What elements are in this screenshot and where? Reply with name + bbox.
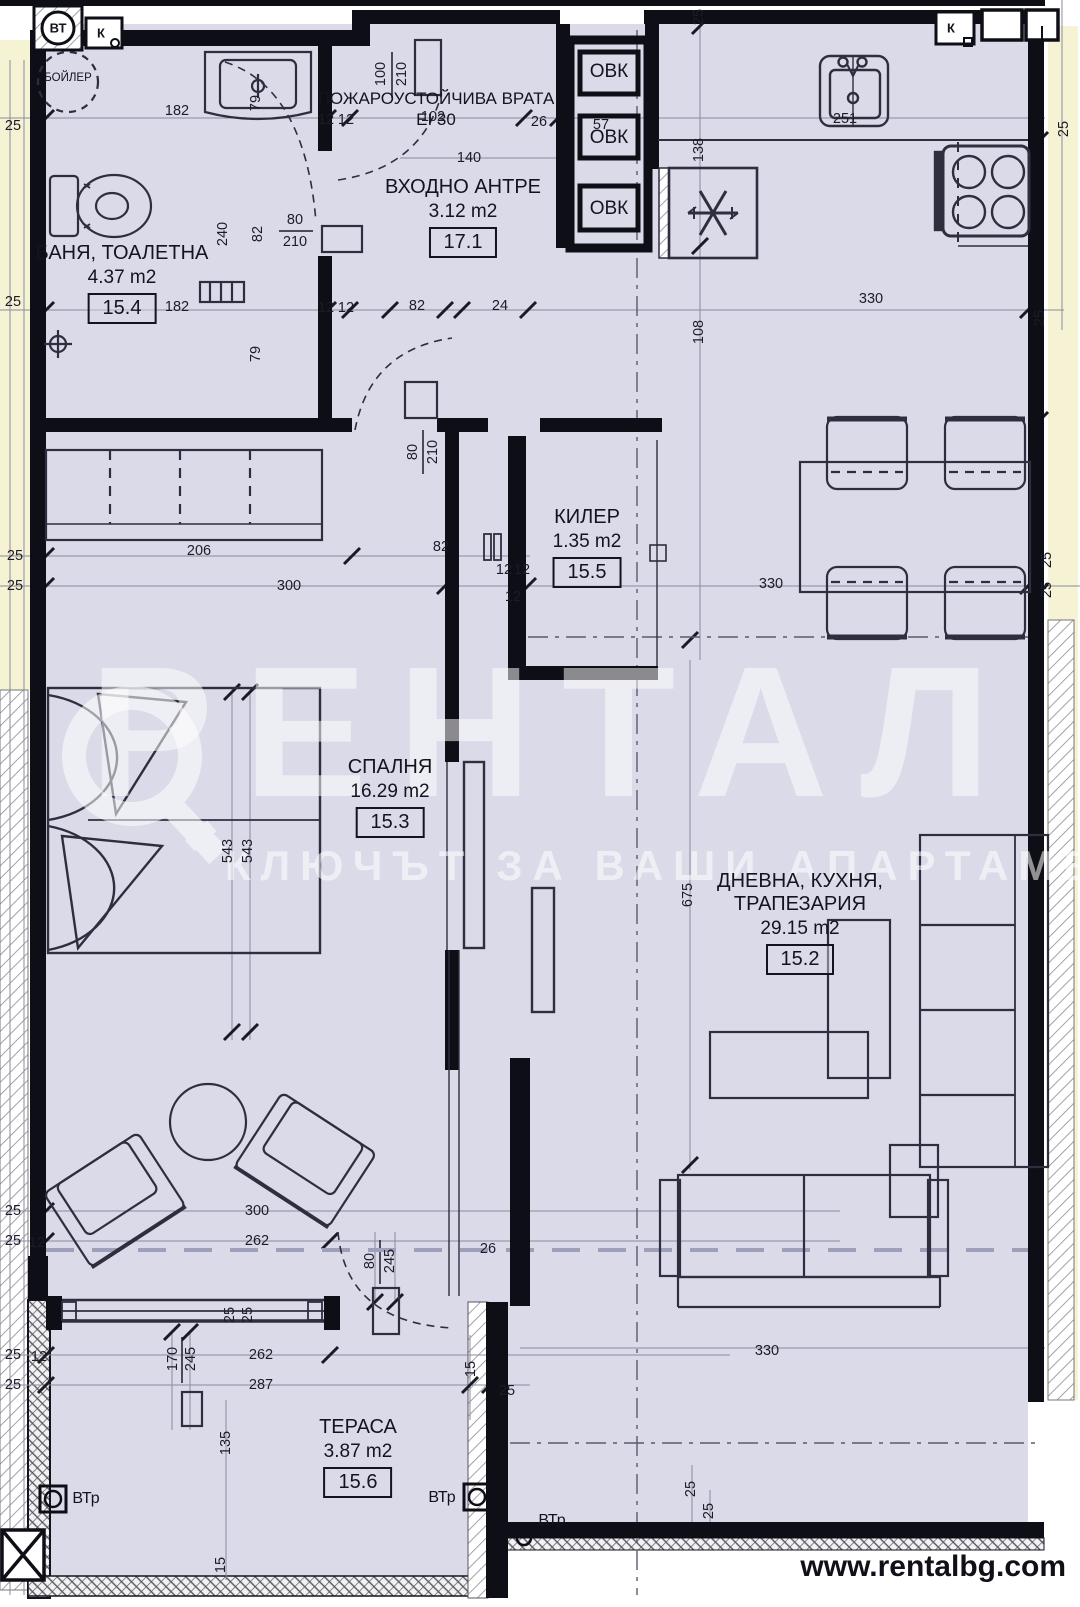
dimension-label: 240 (215, 222, 231, 246)
dimension-label: 135 (218, 1431, 234, 1455)
dimension-label: 300 (245, 1203, 269, 1219)
dimension-label: 182 (165, 299, 189, 315)
dimension-label: 24 (492, 298, 508, 314)
dimension-label: 12 (338, 112, 354, 128)
dimension-label: 330 (759, 576, 783, 592)
dimension-label: 206 (187, 543, 211, 559)
dimension-label: 79 (248, 95, 264, 111)
dimension-label: 25 (5, 1347, 21, 1363)
dimension-label: 25 (701, 1503, 717, 1519)
dimension-label: 26 (480, 1241, 496, 1257)
dimension-label: 245 (382, 1249, 398, 1273)
dimension-label: 140 (457, 150, 481, 166)
dimension-label: 25 (499, 1383, 515, 1399)
dimension-label: 330 (755, 1343, 779, 1359)
dimension-label: 15 (213, 1557, 229, 1573)
dimension-label: 12 (505, 589, 521, 605)
dimension-label: 251 (833, 111, 857, 127)
dimension-label: 25 (5, 1233, 21, 1249)
dimension-label: 543 (240, 839, 256, 863)
dimension-label: 25 (5, 1377, 21, 1393)
dimension-label: 12 (496, 562, 512, 578)
dimension-label: 262 (245, 1233, 269, 1249)
dimension-label: 170 (165, 1347, 181, 1371)
floorplan-page: РЕНТАЛ КЛЮЧЪТ ЗА ВАШИ АПАРТАМЕНТИ БАНЯ, … (0, 0, 1080, 1607)
dimension-layer: 2518212121021402657251100210252579138251… (0, 0, 1080, 1607)
dimension-label: 25 (7, 548, 23, 564)
website-url: www.rentalbg.com (800, 1550, 1066, 1584)
dimension-label: 25 (1039, 552, 1055, 568)
dimension-label: 12 (318, 112, 334, 128)
dimension-label: 108 (691, 320, 707, 344)
dimension-label: 262 (249, 1347, 273, 1363)
dimension-label: 300 (277, 578, 301, 594)
dimension-label: 12 (338, 300, 354, 316)
dimension-label: 25 (5, 118, 21, 134)
dimension-label: 12 (318, 300, 334, 316)
dimension-label: 25 (1056, 121, 1072, 137)
dimension-label: 80 (362, 1253, 378, 1269)
dimension-label: 100 (373, 62, 389, 86)
dimension-label: 25 (7, 578, 23, 594)
dimension-label: 210 (394, 62, 410, 86)
dimension-label: 80 (405, 444, 421, 460)
dimension-label: 80 (287, 212, 303, 228)
dimension-label: 138 (691, 138, 707, 162)
dimension-label: 330 (859, 291, 883, 307)
dimension-label: 15 (463, 1361, 479, 1377)
dimension-label: 25 (5, 1203, 21, 1219)
dimension-label: 25 (5, 294, 21, 310)
dimension-label: 25 (222, 1307, 238, 1323)
dimension-label: 25 (691, 9, 707, 25)
dimension-label: 12 (31, 1349, 47, 1365)
dimension-label: 12 (29, 1235, 45, 1251)
dimension-label: 287 (249, 1377, 273, 1393)
dimension-label: 79 (248, 346, 264, 362)
dimension-label: 25 (683, 1481, 699, 1497)
dimension-label: 25 (1039, 582, 1055, 598)
dimension-label: 182 (165, 103, 189, 119)
dimension-label: 210 (425, 440, 441, 464)
dimension-label: 82 (250, 226, 266, 242)
dimension-label: 82 (409, 298, 425, 314)
dimension-label: 245 (183, 1347, 199, 1371)
dimension-label: 26 (531, 114, 547, 130)
dimension-label: 25 (240, 1307, 256, 1323)
dimension-label: 102 (421, 109, 445, 125)
dimension-label: 12 (514, 562, 530, 578)
dimension-label: 25 (1032, 310, 1048, 326)
dimension-label: 675 (680, 883, 696, 907)
dimension-label: 82 (433, 539, 449, 555)
dimension-label: 57 (593, 117, 609, 133)
dimension-label: 210 (283, 234, 307, 250)
dimension-label: 543 (220, 839, 236, 863)
